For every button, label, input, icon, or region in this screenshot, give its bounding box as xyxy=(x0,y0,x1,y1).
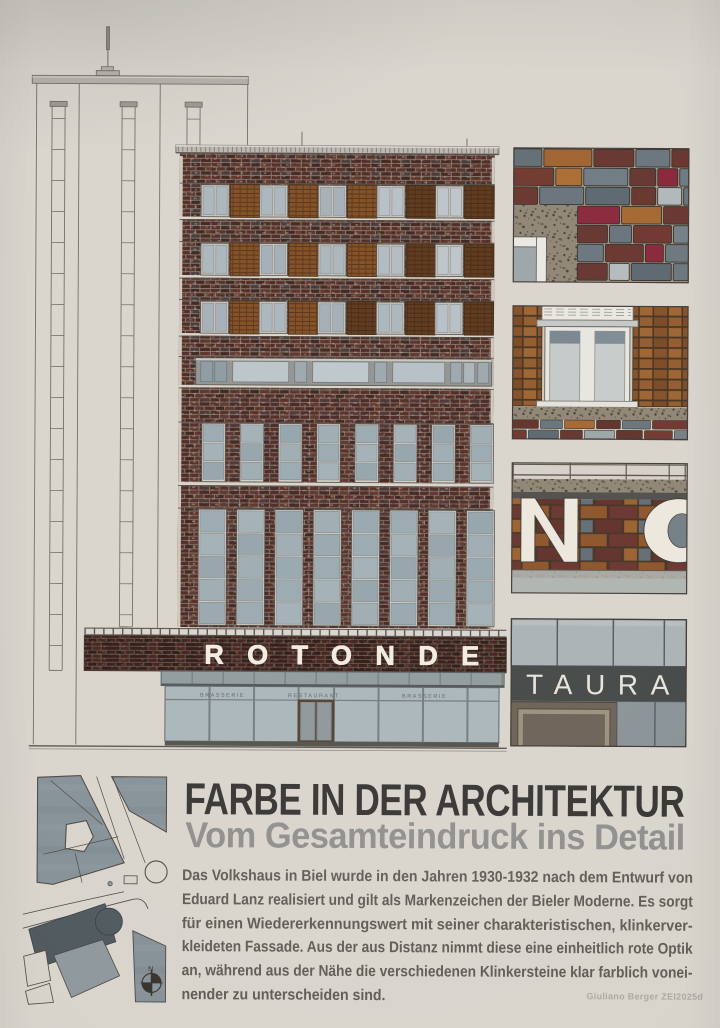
svg-text:TAURA: TAURA xyxy=(526,669,682,701)
svg-text:N: N xyxy=(148,966,153,973)
svg-text:BRASSERIE: BRASSERIE xyxy=(200,693,245,699)
svg-text:BRASSERIE: BRASSERIE xyxy=(402,694,447,700)
svg-text:RESTAURANT: RESTAURANT xyxy=(288,693,340,699)
svg-text:ROTONDE: ROTONDE xyxy=(204,640,502,672)
